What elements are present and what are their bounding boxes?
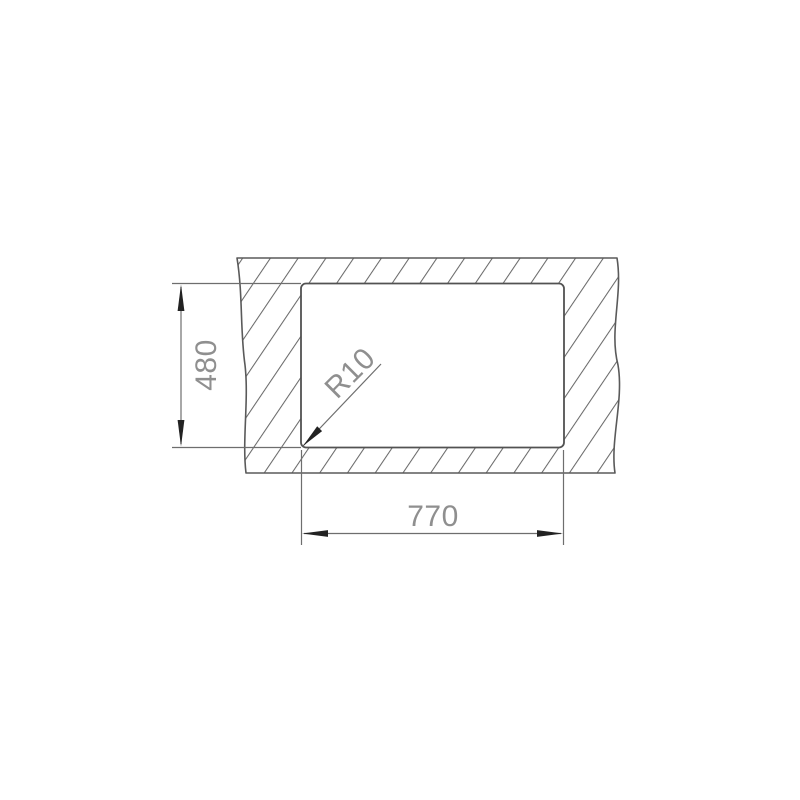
width-dimension-label: 770 [407,500,459,533]
arrow-left-icon [302,530,328,537]
height-dimension-label: 480 [190,339,223,391]
arrow-down-icon [178,420,185,447]
technical-drawing-canvas: 480 770 R10 [0,0,800,800]
arrow-up-icon [178,285,185,312]
arrow-right-icon [537,530,563,537]
cutout-dimension-drawing: 480 770 R10 [0,0,800,800]
